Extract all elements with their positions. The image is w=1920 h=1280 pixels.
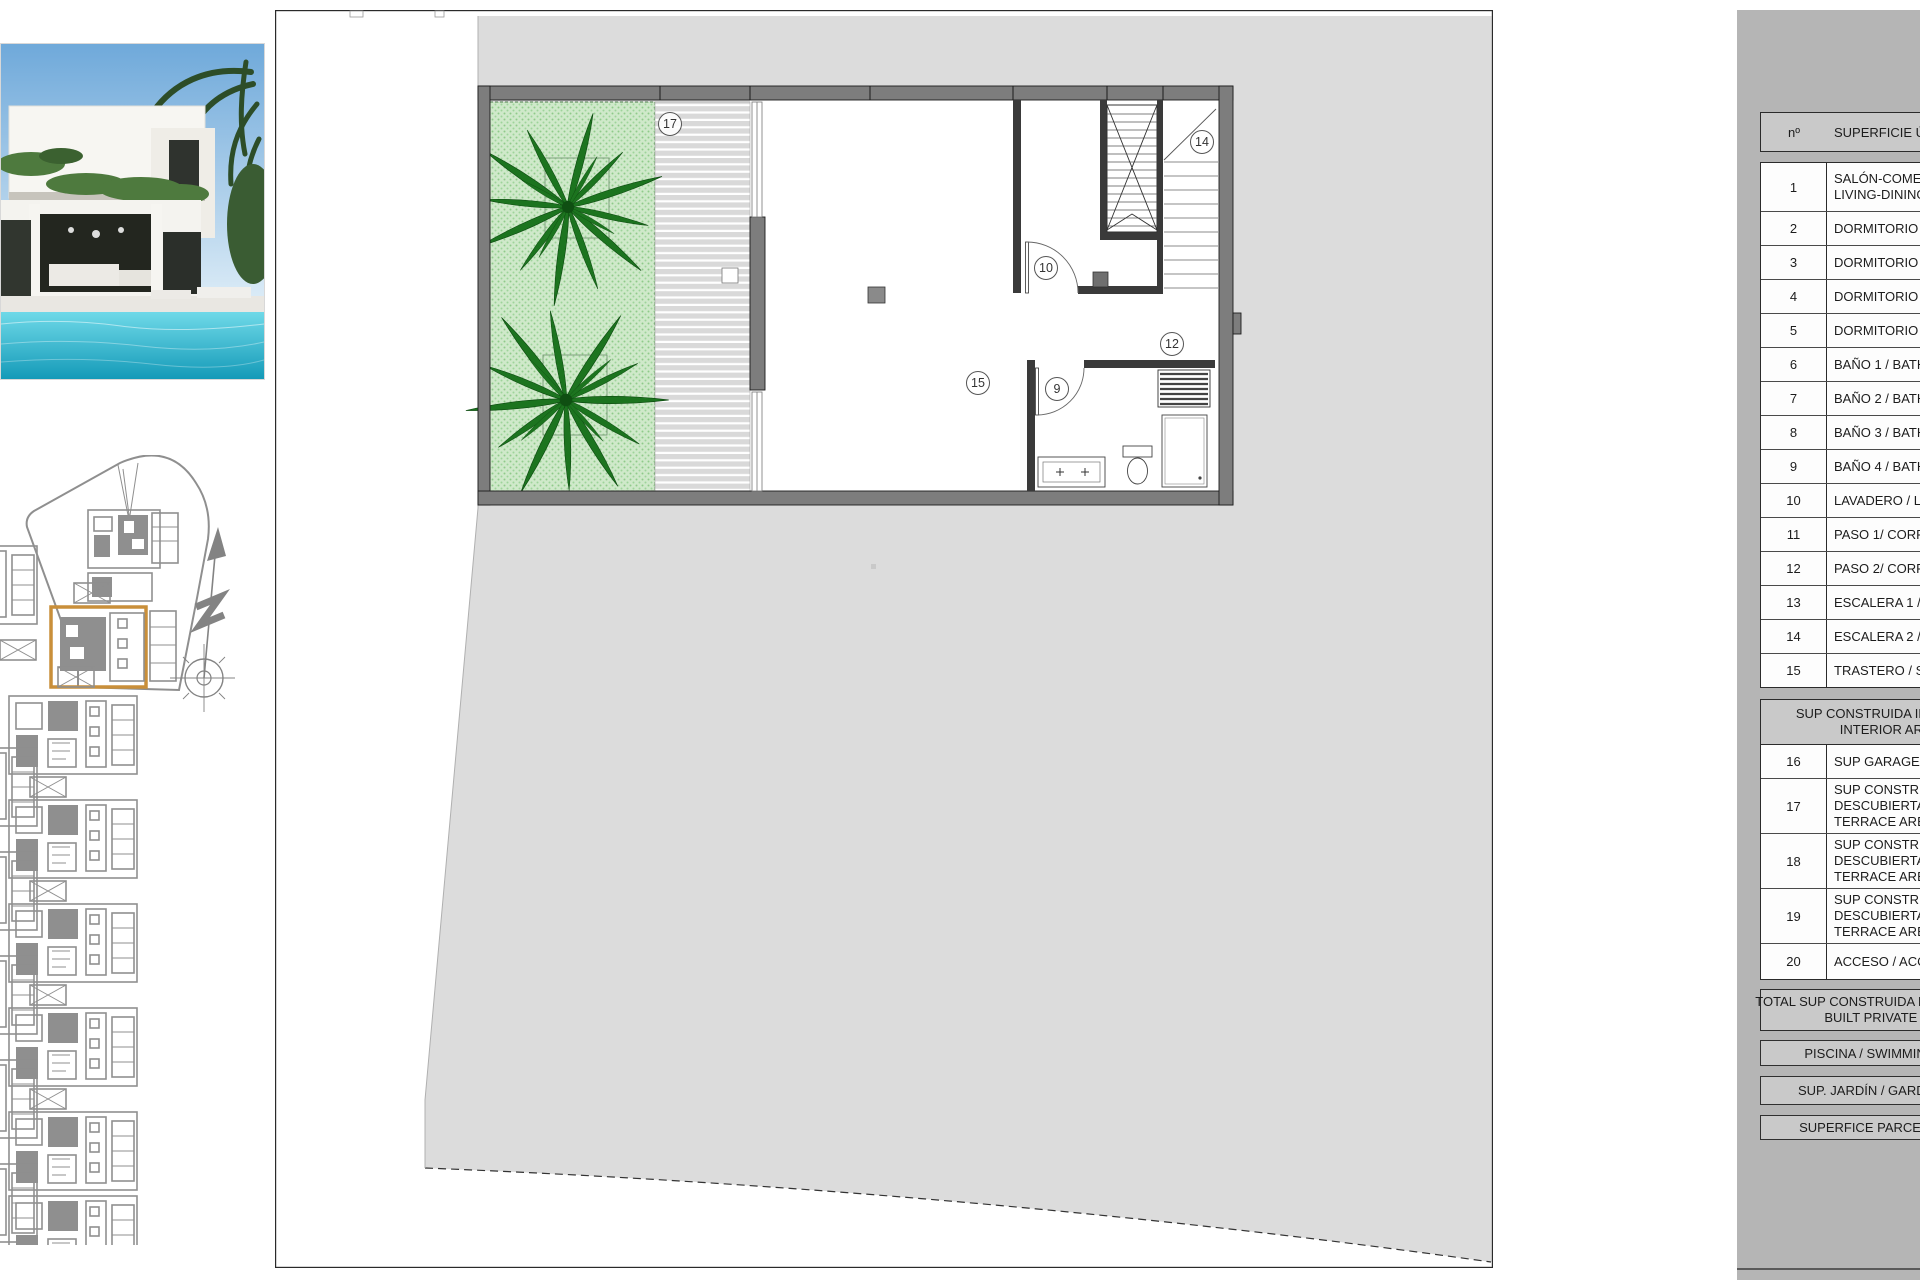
table-row: 17SUP CONSTRUIDADESCUBIERTA /TERRACE ARE… [1761,779,1920,834]
table-row: 15TRASTERO / STORAGE [1761,654,1920,687]
table-header: nº SUPERFICIE ÚTIL [1760,112,1920,152]
room-name-cell: DORMITORIO 3 [1827,280,1920,313]
row-number-cell: 9 [1761,450,1827,483]
room-name-cell: SUP CONSTRUIDADESCUBIERTA /TERRACE AREA [1827,779,1920,833]
row-number-cell: 4 [1761,280,1827,313]
built-header-line: SUP CONSTRUIDA INTERIOR / [1796,706,1920,722]
room-name-cell: SUP CONSTRUIDADESCUBIERTA /TERRACE AREA [1827,889,1920,943]
room-name-line: SALÓN-COMEDOR / [1834,171,1920,187]
column [868,287,885,303]
row-number-cell: 5 [1761,314,1827,347]
row-number-cell: 7 [1761,382,1827,415]
room-name-cell: TRASTERO / STORAGE [1827,654,1920,687]
room-name-line: PASO 2/ CORRIDOR 2 [1834,561,1920,577]
room-name-cell: PASO 2/ CORRIDOR 2 [1827,552,1920,585]
room-name-cell: SUP GARAGE/ GARAGE [1827,745,1920,778]
built-table-body: 16SUP GARAGE/ GARAGE17SUP CONSTRUIDADESC… [1761,745,1920,979]
room-label-9: 9 [1045,377,1069,401]
room-name-line: TERRACE AREA [1834,814,1920,830]
room-label-14: 14 [1190,130,1214,154]
table-row: 9BAÑO 4 / BATH 4 [1761,450,1920,484]
room-name-cell: ACCESO / ACCESS [1827,944,1920,979]
panel-bottom-line [1737,1268,1920,1270]
table-row: 12PASO 2/ CORRIDOR 2 [1761,552,1920,586]
table-row: 10LAVADERO / LAUNDRY [1761,484,1920,518]
room-name-line: ACCESO / ACCESS [1834,954,1920,970]
room-name-cell: DORMITORIO 2 [1827,246,1920,279]
room-name-line: TERRACE AREA [1834,924,1920,940]
row-number-cell: 17 [1761,779,1827,833]
room-name-line: ESCALERA 2 / STAIRS 2 [1834,629,1920,645]
room-label-text: 10 [1039,261,1053,275]
summary-bar-label: SUP. JARDÍN / GARDEN AREA [1798,1083,1920,1098]
room-name-cell: LAVADERO / LAUNDRY [1827,484,1920,517]
total-built-row: TOTAL SUP CONSTRUIDA PRIVADA / TOTAL BUI… [1760,989,1920,1031]
floor-plan-drawing [275,10,1493,1268]
table-row: 14ESCALERA 2 / STAIRS 2 [1761,620,1920,654]
room-label-text: 12 [1165,337,1179,351]
room-name-line: DESCUBIERTA / [1834,798,1920,814]
room-name-line: LIVING-DINING [1834,187,1920,203]
room-name-line: TRASTERO / STORAGE [1834,663,1920,679]
room-name-line: DESCUBIERTA / [1834,853,1920,869]
surface-table: nº SUPERFICIE ÚTIL 1SALÓN-COMEDOR /LIVIN… [1760,112,1920,1140]
col-header-number: nº [1761,125,1827,140]
villa-render-photo [0,43,265,380]
table-row: 8BAÑO 3 / BATH 3 [1761,416,1920,450]
room-name-cell: BAÑO 3 / BATH 3 [1827,416,1920,449]
room-name-line: SUP CONSTRUIDA [1834,782,1920,798]
row-number-cell: 1 [1761,163,1827,211]
row-number-cell: 20 [1761,944,1827,979]
room-name-cell: SUP CONSTRUIDADESCUBIERTA /TERRACE AREA [1827,834,1920,888]
room-name-line: SUP CONSTRUIDA [1834,837,1920,853]
room-name-line: DORMITORIO 4 [1834,323,1920,339]
room-name-cell: ESCALERA 1 / STAIRS 1 [1827,586,1920,619]
room-name-cell: DORMITORIO 1 [1827,212,1920,245]
table-row: 16SUP GARAGE/ GARAGE [1761,745,1920,779]
room-label-10: 10 [1034,256,1058,280]
total-line: BUILT PRIVATE AREA [1824,1010,1920,1026]
table-row: 20ACCESO / ACCESS [1761,944,1920,979]
row-number-cell: 18 [1761,834,1827,888]
built-section-header: SUP CONSTRUIDA INTERIOR / INTERIOR AREA [1761,700,1920,745]
room-label-text: 14 [1195,135,1209,149]
row-number-cell: 10 [1761,484,1827,517]
room-name-line: SUP GARAGE/ GARAGE [1834,754,1920,770]
row-number-cell: 15 [1761,654,1827,687]
room-label-12: 12 [1160,332,1184,356]
room-name-line: PASO 1/ CORRIDOR 1 [1834,527,1920,543]
room-label-text: 9 [1054,382,1061,396]
rooms-table-body: 1SALÓN-COMEDOR /LIVING-DINING2DORMITORIO… [1760,162,1920,688]
site-plan-drawing [0,455,235,1245]
room-name-cell: SALÓN-COMEDOR /LIVING-DINING [1827,163,1920,211]
room-name-cell: BAÑO 4 / BATH 4 [1827,450,1920,483]
room-label-15: 15 [966,371,990,395]
table-row: 13ESCALERA 1 / STAIRS 1 [1761,586,1920,620]
table-row: 19SUP CONSTRUIDADESCUBIERTA /TERRACE ARE… [1761,889,1920,944]
room-name-line: DORMITORIO 1 [1834,221,1920,237]
room-label-text: 17 [663,117,677,131]
summary-bar-pool: PISCINA / SWIMMING POOL [1760,1040,1920,1066]
room-name-line: BAÑO 2 / BATH 2 [1834,391,1920,407]
row-number-cell: 16 [1761,745,1827,778]
table-row: 5DORMITORIO 4 [1761,314,1920,348]
table-row: 7BAÑO 2 / BATH 2 [1761,382,1920,416]
row-number-cell: 12 [1761,552,1827,585]
villa-photo-illustration [1,44,264,379]
summary-bar-label: PISCINA / SWIMMING POOL [1804,1046,1920,1061]
row-number-cell: 8 [1761,416,1827,449]
room-label-17: 17 [658,112,682,136]
plan-sheet: { "sheet": { "type": "architectural floo… [0,0,1920,1280]
table-row: 1SALÓN-COMEDOR /LIVING-DINING [1761,163,1920,212]
row-number-cell: 14 [1761,620,1827,653]
room-name-line: ESCALERA 1 / STAIRS 1 [1834,595,1920,611]
row-number-cell: 13 [1761,586,1827,619]
built-header-line: INTERIOR AREA [1840,722,1920,738]
built-area-section: SUP CONSTRUIDA INTERIOR / INTERIOR AREA … [1760,699,1920,980]
room-label-text: 15 [971,376,985,390]
appliance [1093,272,1108,287]
summary-bar-garden: SUP. JARDÍN / GARDEN AREA [1760,1076,1920,1105]
table-row: 11PASO 1/ CORRIDOR 1 [1761,518,1920,552]
row-number-cell: 6 [1761,348,1827,381]
room-name-line: BAÑO 1 / BATH 1 [1834,357,1920,373]
row-number-cell: 3 [1761,246,1827,279]
table-row: 4DORMITORIO 3 [1761,280,1920,314]
summary-bar-plot: SUPERFICE PARCELA / PLOT [1760,1115,1920,1140]
table-row: 2DORMITORIO 1 [1761,212,1920,246]
row-number-cell: 19 [1761,889,1827,943]
col-header-name: SUPERFICIE ÚTIL [1827,125,1920,140]
garden-area [490,102,655,491]
room-name-line: BAÑO 4 / BATH 4 [1834,459,1920,475]
room-name-line: SUP CONSTRUIDA [1834,892,1920,908]
table-row: 18SUP CONSTRUIDADESCUBIERTA /TERRACE ARE… [1761,834,1920,889]
room-name-line: DORMITORIO 2 [1834,255,1920,271]
row-number-cell: 11 [1761,518,1827,551]
room-name-line: LAVADERO / LAUNDRY [1834,493,1920,509]
room-name-line: BAÑO 3 / BATH 3 [1834,425,1920,441]
room-name-cell: ESCALERA 2 / STAIRS 2 [1827,620,1920,653]
deck-area [655,102,750,491]
summary-bar-label: SUPERFICE PARCELA / PLOT [1799,1120,1920,1135]
room-name-cell: BAÑO 1 / BATH 1 [1827,348,1920,381]
room-name-cell: PASO 1/ CORRIDOR 1 [1827,518,1920,551]
table-row: 3DORMITORIO 2 [1761,246,1920,280]
row-number-cell: 2 [1761,212,1827,245]
table-row: 6BAÑO 1 / BATH 1 [1761,348,1920,382]
room-name-line: TERRACE AREA [1834,869,1920,885]
room-name-line: DESCUBIERTA / [1834,908,1920,924]
room-name-line: DORMITORIO 3 [1834,289,1920,305]
room-name-cell: DORMITORIO 4 [1827,314,1920,347]
total-line: TOTAL SUP CONSTRUIDA PRIVADA / TOTAL [1755,994,1920,1010]
room-name-cell: BAÑO 2 / BATH 2 [1827,382,1920,415]
site-location-plan [0,455,235,1245]
